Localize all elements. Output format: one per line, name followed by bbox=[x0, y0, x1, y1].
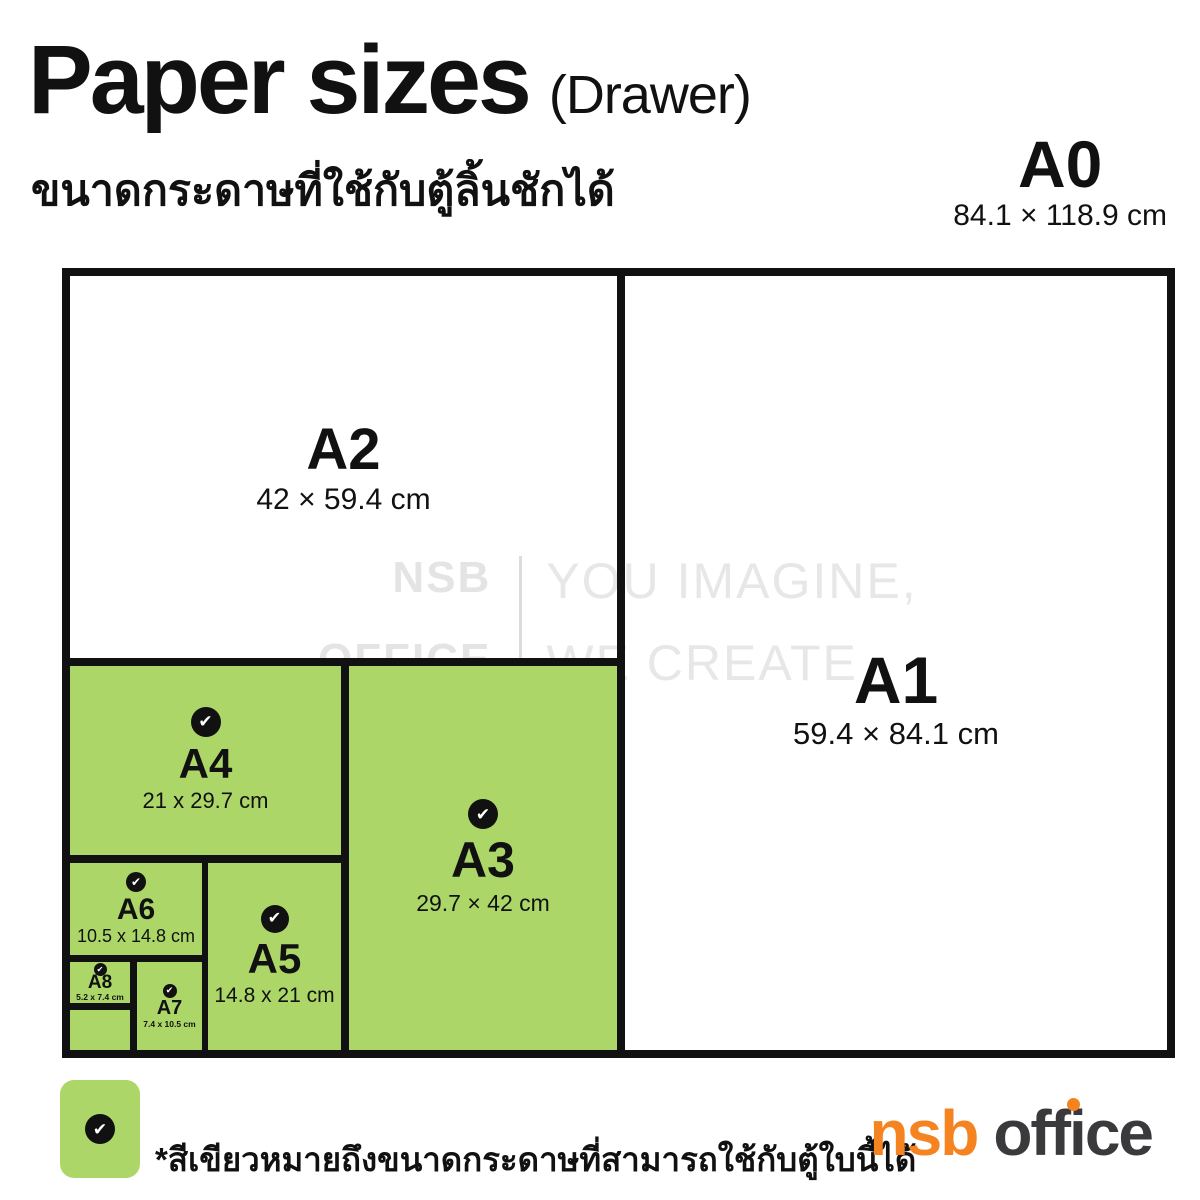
check-icon: ✔ bbox=[191, 707, 221, 737]
legend-swatch: ✔ bbox=[60, 1080, 140, 1178]
paper-a0-dims: 84.1 × 118.9 cm bbox=[953, 199, 1167, 233]
logo-suffix-text: office bbox=[993, 1096, 1152, 1170]
paper-a5: ✔ A5 14.8 x 21 cm bbox=[208, 863, 341, 1050]
paper-a1-dims: 59.4 × 84.1 cm bbox=[793, 716, 999, 752]
paper-a6: ✔ A6 10.5 x 14.8 cm bbox=[70, 863, 202, 955]
paper-a7-name: A7 bbox=[157, 998, 183, 1019]
header: Paper sizes (Drawer) bbox=[28, 24, 751, 136]
highlighted-papers-grid: ✔ A4 21 x 29.7 cm ✔ A3 29.7 × 42 cm ✔ A6… bbox=[70, 658, 617, 1050]
paper-a4-name: A4 bbox=[179, 740, 233, 788]
paper-a0-label: A0 84.1 × 118.9 cm bbox=[953, 130, 1167, 233]
paper-a1-name: A1 bbox=[793, 644, 999, 717]
legend-note-thai: *สีเขียวหมายถึงขนาดกระดาษที่สามารถใช้กับ… bbox=[155, 1133, 916, 1186]
logo-brand-text: nsb bbox=[870, 1096, 978, 1170]
paper-a2: A2 42 × 59.4 cm bbox=[70, 276, 617, 658]
check-icon: ✔ bbox=[468, 799, 498, 829]
check-icon: ✔ bbox=[163, 984, 177, 998]
divider-line bbox=[617, 276, 625, 1050]
paper-a2-name: A2 bbox=[256, 417, 430, 484]
paper-size-diagram: A2 42 × 59.4 cm A1 59.4 × 84.1 cm ✔ A4 2… bbox=[62, 268, 1175, 1058]
paper-a3-dims: 29.7 × 42 cm bbox=[416, 890, 550, 917]
check-icon: ✔ bbox=[85, 1114, 115, 1144]
paper-a8-name: A8 bbox=[88, 973, 112, 992]
page-title-suffix: (Drawer) bbox=[549, 64, 751, 126]
nsb-office-logo: nsb office bbox=[870, 1096, 1152, 1170]
paper-a4: ✔ A4 21 x 29.7 cm bbox=[70, 666, 341, 855]
page-title: Paper sizes bbox=[28, 24, 529, 136]
paper-a7: ✔ A7 7.4 x 10.5 cm bbox=[137, 962, 202, 1050]
check-icon: ✔ bbox=[126, 872, 146, 892]
paper-a6-name: A6 bbox=[117, 893, 155, 926]
paper-remainder-swatch bbox=[70, 1010, 130, 1050]
paper-a7-dims: 7.4 x 10.5 cm bbox=[143, 1019, 195, 1029]
paper-a1: A1 59.4 × 84.1 cm bbox=[625, 276, 1167, 1050]
paper-a6-dims: 10.5 x 14.8 cm bbox=[77, 926, 195, 947]
subtitle-thai: ขนาดกระดาษที่ใช้กับตู้ลิ้นชักได้ bbox=[31, 156, 615, 224]
paper-a8: ✔ A8 5.2 x 7.4 cm bbox=[70, 962, 130, 1003]
check-icon: ✔ bbox=[261, 905, 289, 933]
paper-a2-dims: 42 × 59.4 cm bbox=[256, 483, 430, 517]
paper-a1-label: A1 59.4 × 84.1 cm bbox=[793, 644, 999, 753]
paper-a8-dims: 5.2 x 7.4 cm bbox=[76, 992, 124, 1002]
paper-a2-label: A2 42 × 59.4 cm bbox=[256, 417, 430, 518]
paper-a4-dims: 21 x 29.7 cm bbox=[143, 788, 269, 814]
paper-a3: ✔ A3 29.7 × 42 cm bbox=[349, 666, 617, 1050]
paper-a5-dims: 14.8 x 21 cm bbox=[214, 984, 334, 1008]
paper-a0-name: A0 bbox=[953, 130, 1167, 199]
paper-a5-name: A5 bbox=[248, 935, 302, 983]
paper-a3-name: A3 bbox=[451, 832, 515, 890]
